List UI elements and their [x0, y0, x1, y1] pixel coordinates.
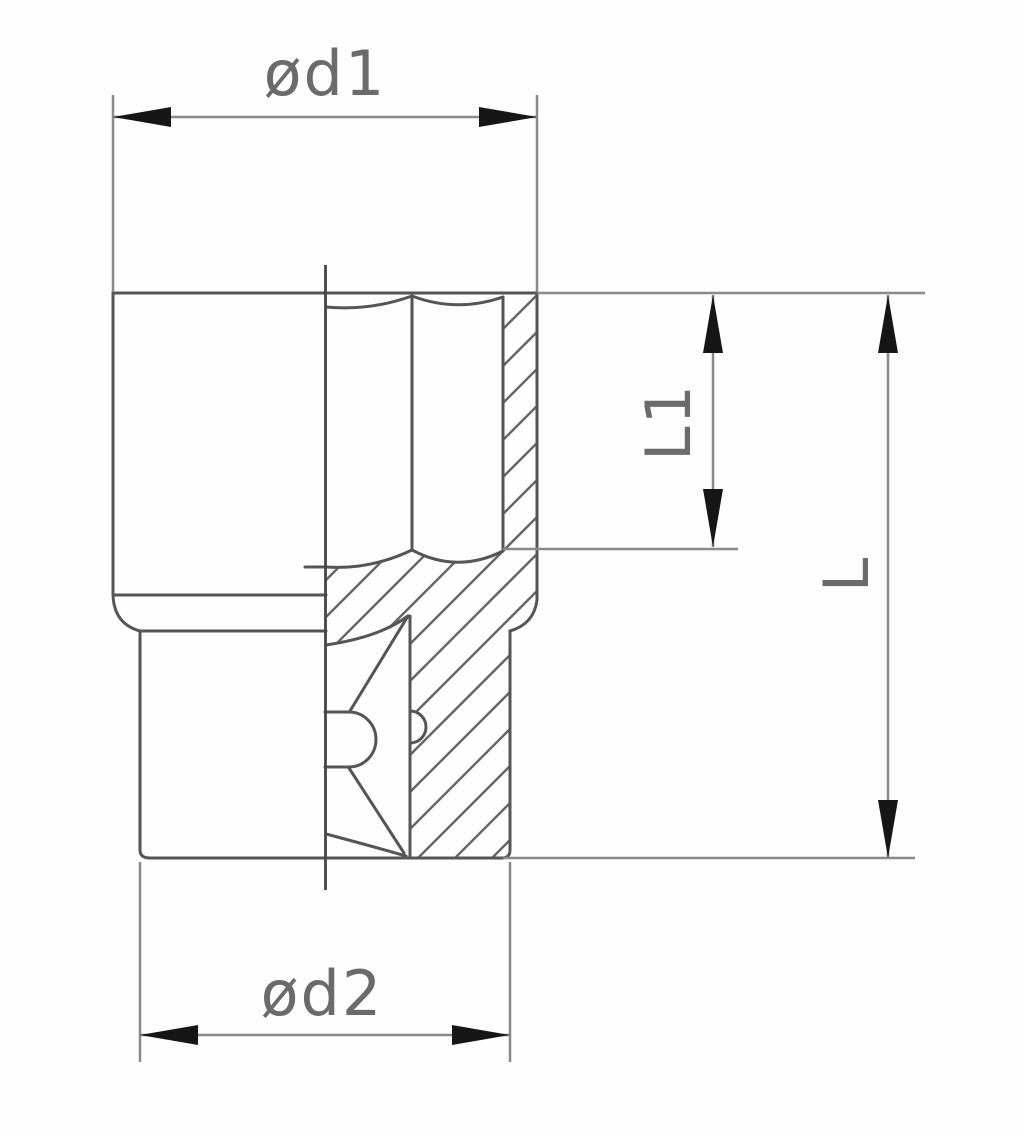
socket-section-drawing: ød1 ød2 L1 L: [0, 0, 1024, 1136]
d1-dimension-label: ød1: [264, 37, 387, 110]
l-dimension-label: L: [810, 556, 883, 593]
l1-dimension-label: L1: [632, 383, 705, 461]
technical-drawing-page: ød1 ød2 L1 L: [0, 0, 1024, 1136]
d2-dimension-label: ød2: [261, 957, 384, 1030]
